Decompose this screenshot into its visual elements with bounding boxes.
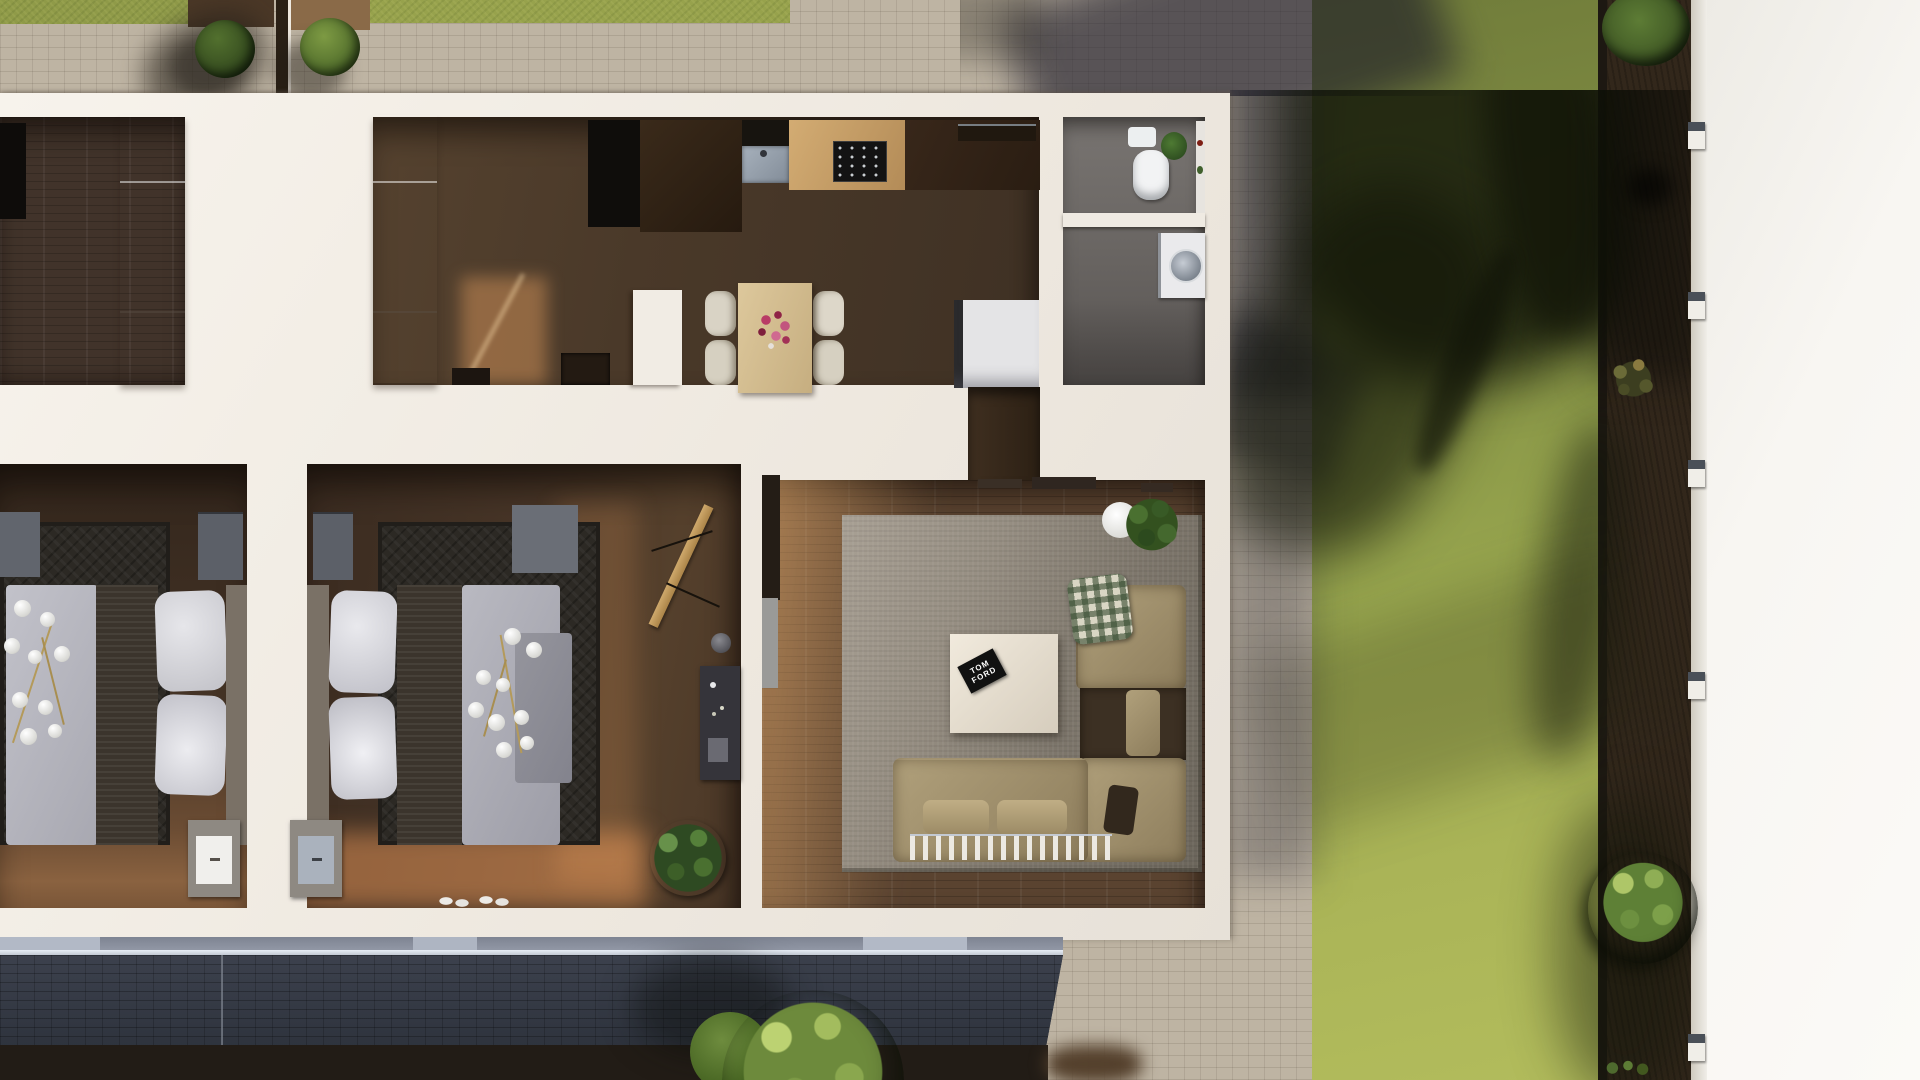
sofa-back-cushion <box>997 800 1067 834</box>
dark-facade <box>0 955 1063 1047</box>
washer-door <box>1169 249 1203 283</box>
shadow-top-paving <box>960 0 1690 96</box>
dark-bench <box>452 368 490 385</box>
bed-right-headboard <box>307 585 329 845</box>
soil-shadow-blob <box>1628 168 1672 206</box>
bed-left-pillow <box>154 590 227 692</box>
slippers <box>438 893 518 911</box>
fridge <box>954 300 1039 388</box>
tv-wall-panel <box>762 475 780 600</box>
bathroom-divider-wall <box>1063 213 1205 227</box>
bed-right-pillow <box>328 696 398 800</box>
sofa-back-cushion <box>923 800 989 834</box>
kitchen-cooktop <box>833 141 887 182</box>
bathroom-shelf-item-red <box>1197 140 1203 146</box>
fence-post <box>1688 672 1705 699</box>
toilet-cistern <box>1128 127 1156 147</box>
fence-post <box>1688 292 1705 319</box>
bed-right-pillow <box>328 590 398 694</box>
bedroom-left-tv-box <box>198 512 243 580</box>
bedroom-right-shelf-box <box>512 505 578 573</box>
stool <box>711 633 731 653</box>
dining-chair <box>705 291 736 336</box>
white-walkway <box>1707 0 1920 1080</box>
bed-left-pillow <box>154 694 227 796</box>
bathroom-shower-shade <box>1063 300 1205 385</box>
wall-vent <box>978 479 1022 488</box>
bedroom-right-tv-box <box>313 512 353 580</box>
potted-plant-bedroom <box>650 820 726 896</box>
bedroom-left-tv-box <box>0 512 40 577</box>
fence-post <box>1688 460 1705 487</box>
wall-vent <box>1032 477 1096 489</box>
stub-wall <box>633 290 682 385</box>
neighbour-black-cabinet <box>0 123 26 219</box>
plaid-throw <box>1066 573 1134 646</box>
dining-chair <box>813 291 844 336</box>
tree-topleft-dark <box>195 20 255 78</box>
tree-topleft-bright <box>300 18 360 76</box>
tv-cabinet <box>762 598 778 688</box>
wall-vent <box>1141 483 1173 492</box>
bedroom-left-dresser <box>188 820 240 897</box>
kitchen-wall-shelf <box>958 124 1036 141</box>
neighbour-wardrobe <box>120 115 185 383</box>
hanging-lamp-right <box>466 628 558 773</box>
aerial-render: TOM FORD <box>0 0 1920 1080</box>
fence-post <box>1688 1034 1705 1061</box>
dining-dark-desk <box>561 353 610 385</box>
kitchen-walnut-cabinet <box>640 120 742 232</box>
kitchen-faucet <box>760 150 767 157</box>
kitchen-tall-black-cabinet <box>588 120 640 227</box>
bedroom-right-dresser <box>290 820 342 897</box>
dining-chair <box>813 340 844 385</box>
unit-wardrobe <box>373 115 437 383</box>
flower-vase <box>752 306 798 354</box>
bathroom-plant <box>1161 132 1187 160</box>
hanging-lamp-left <box>2 596 92 776</box>
dry-grass-plant <box>1598 344 1672 414</box>
toilet <box>1133 150 1169 200</box>
shadow-trees-topleft <box>0 0 560 96</box>
dirt-patch-bottom <box>1046 1045 1142 1080</box>
bottom-exterior <box>0 937 1312 1080</box>
bathroom-shelf-item-green <box>1197 166 1203 174</box>
facade-seam <box>221 955 223 1047</box>
bed-left-runner <box>96 585 158 845</box>
doorway-passage <box>968 387 1040 480</box>
tree-bottomright <box>1588 852 1698 964</box>
sprout-plant <box>1602 1056 1654 1080</box>
potted-plant-living <box>1100 494 1186 564</box>
fringe-garland <box>910 834 1112 860</box>
console-table <box>700 666 740 780</box>
washing-machine <box>1158 233 1205 298</box>
bed-left-headboard <box>226 585 247 845</box>
sofa-dark-module-cushion <box>1126 690 1160 756</box>
dining-chair <box>705 340 736 385</box>
railing-highlight <box>0 950 1063 955</box>
fence-post <box>1688 122 1705 149</box>
bed-right-runner <box>397 585 462 845</box>
